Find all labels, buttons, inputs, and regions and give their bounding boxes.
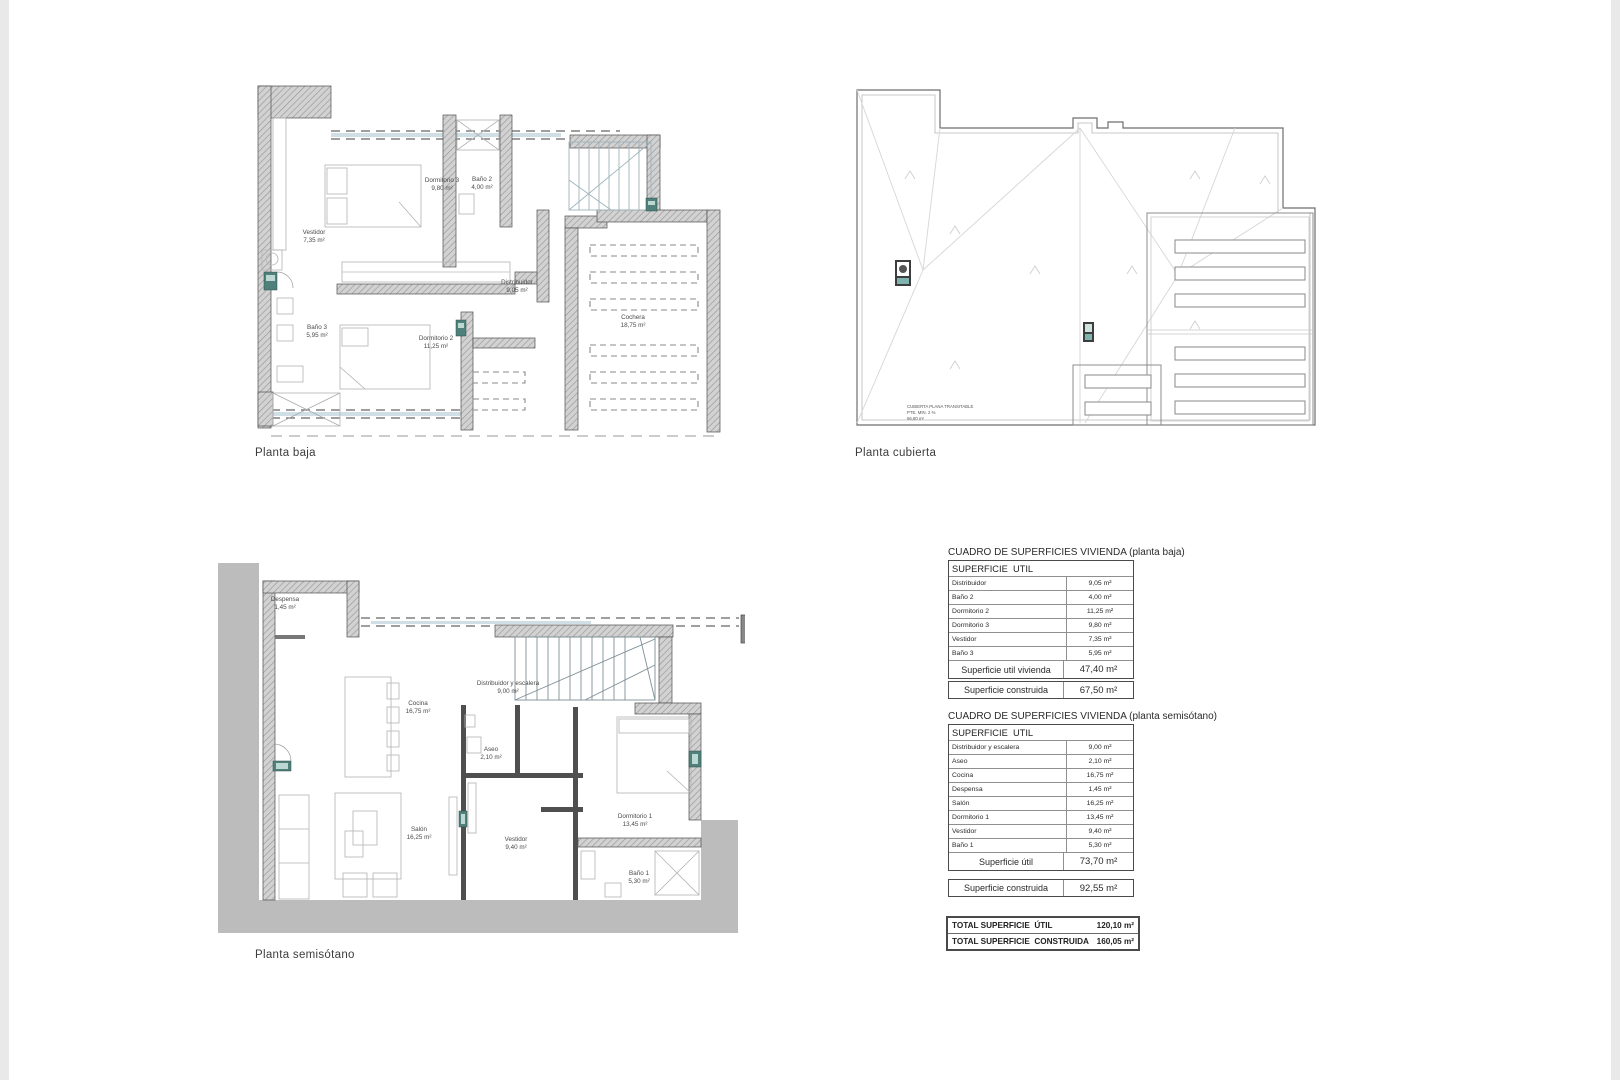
row-label: Salón: [949, 797, 1066, 810]
table-row: Salón 16,25 m²: [949, 796, 1133, 810]
row-value: 9,05 m²: [1066, 577, 1133, 590]
walls: [258, 86, 720, 432]
total-construida-label: TOTAL SUPERFICIE CONSTRUIDA: [948, 937, 1097, 946]
row-value: 13,45 m²: [1066, 811, 1133, 824]
row-value: 16,75 m²: [1066, 769, 1133, 782]
total-construida-row: TOTAL SUPERFICIE CONSTRUIDA 160,05 m²: [948, 933, 1138, 949]
walls: [263, 581, 701, 900]
room-label: Salón: [411, 826, 428, 833]
row-value: 4,00 m²: [1066, 591, 1133, 604]
surface-table-semisotano: SUPERFICIE UTIL Distribuidor y escalera …: [948, 724, 1134, 871]
table-header: SUPERFICIE UTIL: [949, 561, 1133, 576]
room-area: 5,30 m²: [628, 878, 649, 885]
table-row: Dormitorio 3 9,80 m²: [949, 618, 1133, 632]
ridge-lines: [857, 90, 1283, 423]
row-label: Despensa: [949, 783, 1066, 796]
garage-slats: [473, 245, 698, 410]
row-value: 5,95 m²: [1066, 647, 1133, 660]
retaining-bands: [218, 563, 738, 933]
row-value: 2,10 m²: [1066, 755, 1133, 768]
total-util-label: TOTAL SUPERFICIE ÚTIL: [948, 921, 1097, 930]
row-label: Dormitorio 3: [949, 619, 1066, 632]
roof-note-line: 56,80 m²: [907, 416, 925, 421]
room-area: 13,45 m²: [623, 821, 648, 828]
table-title-semisotano: CUADRO DE SUPERFICIES VIVIENDA (planta s…: [948, 711, 1217, 722]
room-label: Aseo: [484, 746, 499, 753]
room-label: Baño 2: [472, 176, 492, 183]
row-value: 7,35 m²: [1066, 633, 1133, 646]
table-row: Dormitorio 1 13,45 m²: [949, 810, 1133, 824]
table-footer: Superficie útil 73,70 m²: [949, 852, 1133, 870]
construida-box-baja: Superficie construida 67,50 m²: [948, 681, 1134, 699]
caption-planta-baja: Planta baja: [255, 447, 316, 459]
row-value: 5,30 m²: [1066, 839, 1133, 852]
pergola: [1073, 213, 1313, 425]
chimney-icons: [895, 260, 1094, 342]
partitions: [461, 705, 583, 900]
sheet-edge-right: [1611, 0, 1620, 1080]
footer-label: Superficie util vivienda: [949, 661, 1063, 678]
table-row: Baño 3 5,95 m²: [949, 646, 1133, 660]
room-label: Cocina: [408, 700, 428, 707]
room-label: Vestidor: [303, 229, 326, 236]
table-row: Vestidor 7,35 m²: [949, 632, 1133, 646]
footer-value: 47,40 m²: [1063, 661, 1133, 678]
table-row: Distribuidor y escalera 9,00 m²: [949, 740, 1133, 754]
room-label: Despensa: [271, 596, 300, 603]
table-row: Aseo 2,10 m²: [949, 754, 1133, 768]
room-area: 2,10 m²: [480, 754, 501, 761]
row-label: Baño 2: [949, 591, 1066, 604]
footer-label: Superficie útil: [949, 853, 1063, 870]
total-util-value: 120,10 m²: [1097, 921, 1138, 930]
room-label: Distribuidor y escalera: [477, 680, 540, 687]
room-area: 9,40 m²: [505, 844, 526, 851]
table-row: Baño 1 5,30 m²: [949, 838, 1133, 852]
room-area: 9,05 m²: [506, 287, 527, 294]
staircase: [569, 142, 651, 210]
table-row: Despensa 1,45 m²: [949, 782, 1133, 796]
room-area: 4,00 m²: [471, 184, 492, 191]
room-label: Dormitorio 1: [618, 813, 653, 820]
staircase: [515, 637, 655, 700]
row-value: 9,00 m²: [1066, 741, 1133, 754]
table-row: Distribuidor 9,05 m²: [949, 576, 1133, 590]
room-label: Vestidor: [505, 836, 528, 843]
planta-semisotano-plan: Despensa 1,45 m² Cocina 16,75 m² Distrib…: [215, 555, 745, 940]
roof-note-line: CUBIERTA PLANA TRANSITABLE: [907, 404, 973, 409]
construida-box-semisotano: Superficie construida 92,55 m²: [948, 879, 1134, 897]
room-area: 9,00 m²: [497, 688, 518, 695]
row-label: Aseo: [949, 755, 1066, 768]
construida-label: Superficie construida: [949, 682, 1063, 698]
construida-value: 92,55 m²: [1063, 880, 1133, 896]
row-label: Baño 3: [949, 647, 1066, 660]
planta-baja-plan: Dormitorio 3 9,80 m² Baño 2 4,00 m² Vest…: [245, 82, 723, 454]
row-label: Distribuidor y escalera: [949, 741, 1066, 754]
room-area: 18,75 m²: [621, 322, 646, 329]
caption-planta-cubierta: Planta cubierta: [855, 447, 936, 459]
table-title-baja: CUADRO DE SUPERFICIES VIVIENDA (planta b…: [948, 547, 1185, 558]
table-row: Dormitorio 2 11,25 m²: [949, 604, 1133, 618]
total-construida-value: 160,05 m²: [1097, 937, 1138, 946]
construida-value: 67,50 m²: [1063, 682, 1133, 698]
total-util-row: TOTAL SUPERFICIE ÚTIL 120,10 m²: [948, 918, 1138, 933]
construida-label: Superficie construida: [949, 880, 1063, 896]
totals-box: TOTAL SUPERFICIE ÚTIL 120,10 m² TOTAL SU…: [946, 916, 1140, 951]
drawing-sheet: Dormitorio 3 9,80 m² Baño 2 4,00 m² Vest…: [0, 0, 1620, 1080]
room-label: Baño 3: [307, 324, 327, 331]
terrace: [273, 393, 340, 426]
table-footer: Superficie util vivienda 47,40 m²: [949, 660, 1133, 678]
wardrobe: [342, 262, 510, 282]
sheet-edge-left: [0, 0, 9, 1080]
row-label: Baño 1: [949, 839, 1066, 852]
caption-planta-semisotano: Planta semisótano: [255, 949, 355, 961]
room-label: Cochera: [621, 314, 645, 321]
row-value: 16,25 m²: [1066, 797, 1133, 810]
row-label: Vestidor: [949, 633, 1066, 646]
room-area: 9,80 m²: [431, 185, 452, 192]
table-row: Cocina 16,75 m²: [949, 768, 1133, 782]
table-row: Baño 2 4,00 m²: [949, 590, 1133, 604]
row-label: Dormitorio 2: [949, 605, 1066, 618]
room-area: 1,45 m²: [274, 604, 295, 611]
row-value: 9,40 m²: [1066, 825, 1133, 838]
roof-note-line: PTE. MIN. 2 %: [907, 410, 936, 415]
planta-cubierta-plan: CUBIERTA PLANA TRANSITABLE PTE. MIN. 2 %…: [845, 80, 1325, 455]
room-label: Baño 1: [629, 870, 649, 877]
table-header: SUPERFICIE UTIL: [949, 725, 1133, 740]
row-label: Dormitorio 1: [949, 811, 1066, 824]
surface-table-baja: SUPERFICIE UTIL Distribuidor 9,05 m² Bañ…: [948, 560, 1134, 679]
room-label: Dormitorio 2: [419, 335, 454, 342]
row-value: 11,25 m²: [1066, 605, 1133, 618]
table-row: Vestidor 9,40 m²: [949, 824, 1133, 838]
room-area: 16,25 m²: [407, 834, 432, 841]
row-label: Cocina: [949, 769, 1066, 782]
room-area: 7,35 m²: [303, 237, 324, 244]
row-value: 1,45 m²: [1066, 783, 1133, 796]
room-label: Distribuidor: [501, 279, 533, 286]
row-label: Distribuidor: [949, 577, 1066, 590]
footer-value: 73,70 m²: [1063, 853, 1133, 870]
roof-annotation: CUBIERTA PLANA TRANSITABLE PTE. MIN. 2 %…: [907, 404, 973, 421]
row-label: Vestidor: [949, 825, 1066, 838]
room-area: 11,25 m²: [424, 343, 448, 350]
room-label: Dormitorio 3: [425, 177, 460, 184]
room-area: 5,95 m²: [306, 332, 327, 339]
room-area: 16,75 m²: [406, 708, 431, 715]
row-value: 9,80 m²: [1066, 619, 1133, 632]
